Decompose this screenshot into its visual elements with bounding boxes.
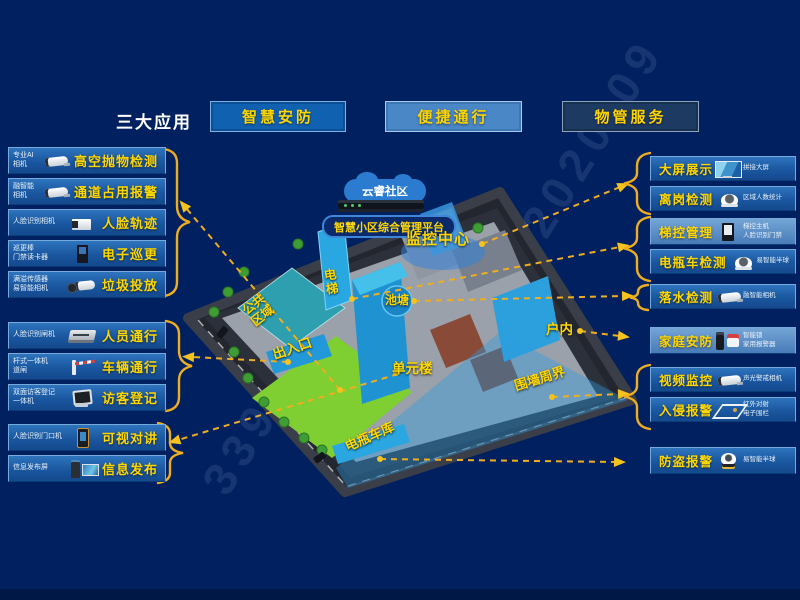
device-name: 巡更棒 门禁读卡器	[9, 245, 65, 263]
bullet-camera-icon	[40, 150, 74, 172]
device-name: 满溢传感器 易智能相机	[9, 276, 65, 294]
feature-row-elevator-control: 梯控管理 梯控主机 人脸识别门禁	[650, 218, 796, 245]
feature-row-home-security: 家庭安防 智能锁 家用报警器	[650, 327, 796, 354]
device-name: 区域人数统计	[743, 194, 795, 202]
feature-row-off-duty-detection: 离岗检测 区域人数统计	[650, 186, 796, 211]
box-camera-icon	[65, 212, 99, 234]
tab-convenient-access[interactable]: 便捷通行	[385, 101, 522, 132]
feature-label: 入侵报警	[651, 400, 713, 419]
device-name: 专业AI相机	[9, 152, 40, 170]
bullet-camera-icon	[713, 369, 743, 391]
device-name: 易智能半球	[743, 456, 795, 464]
feature-label: 人员通行	[99, 326, 165, 345]
feature-row-garbage-disposal: 满溢传感器 易智能相机 垃圾投放	[8, 271, 166, 298]
dome-camera-icon	[713, 450, 743, 472]
device-name: 人脸识别门口机	[9, 433, 65, 442]
feature-row-high-altitude-detection: 专业AI相机 高空抛物检测	[8, 147, 166, 174]
bullet-camera-icon	[40, 181, 74, 203]
elevator-panel-icon	[713, 221, 743, 243]
device-name: 人脸识别相机	[9, 218, 65, 227]
map-label-indoor: 户内	[546, 322, 573, 338]
device-name: 杆式一体机 道闸	[9, 358, 65, 376]
feature-label: 高空抛物检测	[74, 151, 165, 170]
device-name: 声光警戒相机	[743, 375, 795, 383]
card-reader-icon	[65, 243, 99, 265]
feature-row-face-trajectory: 人脸识别相机 人脸轨迹	[8, 209, 166, 236]
dome-camera-icon	[727, 251, 757, 273]
device-name: 智能锁 家用报警器	[743, 332, 795, 348]
feature-label: 离岗检测	[651, 189, 713, 208]
page-title: 三大应用	[116, 108, 192, 133]
smart-lock-siren-icon	[713, 330, 743, 352]
feature-row-antitheft-alarm: 防盗报警 易智能半球	[650, 447, 796, 474]
device-name: 双面访客登记 一体机	[9, 389, 65, 407]
device-name: 拼接大屏	[743, 164, 795, 172]
device-name: 融智能相机	[9, 183, 40, 201]
electronic-fence-icon	[713, 399, 743, 421]
feature-label: 家庭安防	[651, 331, 713, 350]
feature-row-video-surveillance: 视频监控 声光警戒相机	[650, 367, 796, 392]
feature-row-video-wall-display: 大屏展示 拼接大屏	[650, 156, 796, 181]
feature-row-vehicle-access: 杆式一体机 道闸 车辆通行	[8, 353, 166, 380]
server-rack-icon	[338, 200, 424, 212]
feature-row-information-release: 信息发布屏 信息发布	[8, 455, 166, 482]
feature-label: 防盗报警	[651, 451, 713, 470]
feature-label: 车辆通行	[99, 357, 165, 376]
turnstile-gate-icon	[65, 325, 99, 347]
map-label-monitor-center: 监控中心	[406, 231, 470, 248]
feature-row-ebike-detection: 电瓶车检测 易智能半球	[650, 249, 796, 274]
feature-label: 访客登记	[99, 388, 165, 407]
feature-row-intrusion-alarm: 入侵报警 红外对射 电子围栏	[650, 397, 796, 422]
bottom-edge	[0, 589, 800, 600]
feature-label: 大屏展示	[651, 159, 713, 178]
device-name: 红外对射 电子围栏	[743, 401, 795, 417]
feature-row-drowning-detection: 落水检测 融智能相机	[650, 284, 796, 309]
registration-kiosk-icon	[65, 387, 99, 409]
bullet-camera-icon	[713, 286, 743, 308]
feature-label: 垃圾投放	[99, 275, 165, 294]
feature-label: 信息发布	[99, 459, 165, 478]
map-label-unit-building: 单元楼	[392, 361, 433, 377]
feature-row-personnel-access: 人脸识别闸机 人员通行	[8, 322, 166, 349]
feature-label: 落水检测	[651, 287, 713, 306]
feature-label: 可视对讲	[99, 428, 165, 447]
feature-row-electronic-patrol: 巡更棒 门禁读卡器 电子巡更	[8, 240, 166, 267]
feature-row-visitor-registration: 双面访客登记 一体机 访客登记	[8, 384, 166, 411]
map-label-pond: 池塘	[385, 294, 409, 308]
feature-row-video-intercom: 人脸识别门口机 可视对讲	[8, 424, 166, 451]
device-name: 融智能相机	[743, 292, 795, 300]
device-name: 人脸识别闸机	[9, 331, 65, 340]
device-name: 梯控主机 人脸识别门禁	[743, 223, 795, 239]
feature-label: 电瓶车检测	[651, 252, 727, 271]
device-name: 信息发布屏	[9, 464, 65, 473]
tab-smart-security[interactable]: 智慧安防	[210, 101, 346, 132]
info-screen-icon	[65, 458, 99, 480]
device-name: 易智能半球	[757, 257, 795, 265]
door-station-icon	[65, 427, 99, 449]
feature-label: 通道占用报警	[74, 182, 165, 201]
feature-label: 梯控管理	[651, 222, 713, 241]
feature-label: 电子巡更	[99, 244, 165, 263]
video-wall-icon	[713, 158, 743, 180]
feature-label: 视频监控	[651, 370, 713, 389]
feature-label: 人脸轨迹	[99, 213, 165, 232]
feature-row-channel-occupation-alarm: 融智能相机 通道占用报警	[8, 178, 166, 205]
tab-property-service[interactable]: 物管服务	[562, 101, 699, 132]
sensor-camera-icon	[65, 274, 99, 296]
dome-camera-icon	[713, 188, 743, 210]
barrier-gate-icon	[65, 356, 99, 378]
